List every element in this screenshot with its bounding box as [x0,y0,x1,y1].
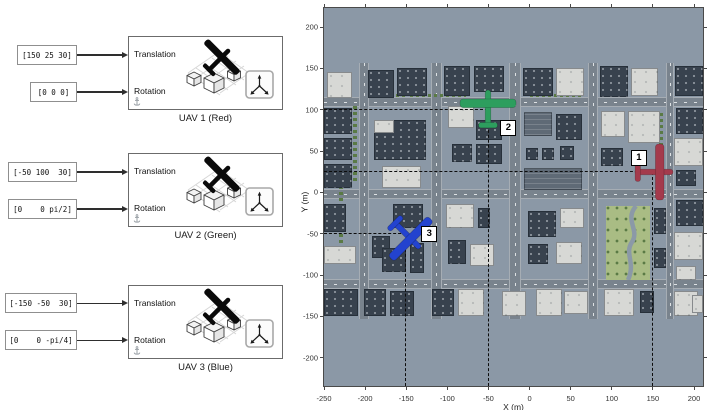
building [524,112,552,136]
building [692,295,703,313]
building [601,111,625,137]
building [676,266,696,280]
scene-map-axes: 1 2 3 [323,7,704,387]
uav3-rotation-constant[interactable]: [0 0 -pi/4] [5,330,77,350]
building [556,242,582,264]
building [397,68,427,96]
uav2-block[interactable]: Translation Rotation [128,153,283,227]
y-tick-label: 150 [305,64,318,73]
signal-wire [77,171,122,172]
translation-port-label: Translation [134,166,176,176]
building [676,170,696,186]
building [536,289,562,316]
building [470,244,494,266]
building [523,68,553,96]
building [324,164,352,188]
building [560,208,584,228]
anchor-icon [133,97,141,107]
x-tick-label: 50 [559,394,583,403]
building [674,138,703,166]
building [444,66,470,96]
uav-scene-icon [174,288,278,352]
building [476,144,502,164]
y-tick-label: -150 [303,312,318,321]
translation-port-label: Translation [134,49,176,59]
building [432,289,454,316]
building [556,68,584,96]
signal-wire [77,208,122,209]
y-tick-label: -100 [303,271,318,280]
building [382,166,421,188]
x-tick-label: 200 [682,394,706,403]
park [606,206,650,280]
y-tick-label: 0 [314,188,318,197]
position-dashed-line-v [488,110,489,386]
x-tick-label: 0 [518,394,542,403]
position-dashed-line-v [652,172,653,386]
building [324,246,356,264]
building [324,108,352,134]
x-tick-label: 150 [641,394,665,403]
road-vertical [509,63,521,319]
building [564,291,588,314]
rotation-port-label: Rotation [134,203,166,213]
uav1-block[interactable]: Translation Rotation [128,36,283,110]
y-axis-label: Y (m) [299,192,309,213]
building [368,70,394,98]
building [542,148,554,160]
uav2-block-name: UAV 2 (Green) [128,230,283,241]
y-tick-label: 100 [305,105,318,114]
building [674,232,703,260]
building [382,248,406,272]
uav3-block[interactable]: Translation Rotation [128,285,283,359]
road-vertical [431,63,442,319]
building [654,208,666,234]
position-dashed-line-h [324,109,488,110]
uav3-translation-constant[interactable]: [-150 -50 30] [5,293,77,313]
building [324,204,346,232]
uav1-translation-constant[interactable]: [150 25 30] [17,45,77,65]
uav1-block-name: UAV 1 (Red) [128,113,283,124]
building [452,144,472,162]
uav-marker-label-3: 3 [421,226,437,242]
building [628,111,660,143]
y-tick-label: 200 [305,23,318,32]
building [324,138,352,160]
position-dashed-line-v [405,234,406,386]
x-tick-label: 100 [600,394,624,403]
signal-wire [77,303,122,304]
screenshot-root: [150 25 30] [0 0 0] Translation Rotation [0,0,708,410]
rotation-port-label: Rotation [134,335,166,345]
building [526,148,538,160]
road-vertical [666,63,674,319]
x-tick-label: -150 [394,394,418,403]
building [654,248,666,268]
building [676,200,703,226]
building [458,289,484,316]
signal-wire [77,54,122,55]
x-axis-label: X (m) [324,402,703,410]
anchor-icon [133,346,141,356]
uav2-rotation-constant[interactable]: [0 0 pi/2] [8,199,77,219]
signal-wire [77,340,122,341]
x-tick-label: -250 [312,394,336,403]
building [556,114,582,140]
building [675,66,703,96]
building [374,120,394,133]
building [528,211,556,237]
uav-marker-label-2: 2 [500,120,516,136]
building [676,108,703,134]
building [410,243,424,273]
uav-scene-icon [174,39,278,103]
building [390,291,414,316]
translation-port-label: Translation [134,298,176,308]
building [474,66,504,92]
y-tick-label: -200 [303,353,318,362]
uav2-translation-constant[interactable]: [-50 100 30] [8,162,77,182]
uav-marker-label-1: 1 [631,150,647,166]
rotation-port-label: Rotation [134,86,166,96]
position-dashed-line-h [324,233,406,234]
tree-row [353,106,357,184]
road-vertical [359,63,369,319]
building [560,146,574,160]
building [446,204,474,228]
building [327,72,352,98]
building [528,244,548,264]
y-tick-label: -50 [307,229,318,238]
uav3-block-name: UAV 3 (Blue) [128,362,283,373]
building [601,148,623,166]
road-vertical [588,63,598,319]
x-tick-label: -200 [353,394,377,403]
y-tick-label: 50 [310,147,318,156]
building [393,204,423,228]
building [364,289,386,316]
x-tick-label: -50 [476,394,500,403]
uav-scene-icon [174,156,278,220]
building [631,68,658,96]
uav1-rotation-constant[interactable]: [0 0 0] [30,82,77,102]
building [502,291,526,316]
anchor-icon [133,214,141,224]
building [324,289,358,316]
x-tick-label: -100 [435,394,459,403]
signal-wire [77,91,122,92]
building [604,289,634,316]
building [448,240,466,264]
building [600,66,628,97]
building [476,120,502,140]
